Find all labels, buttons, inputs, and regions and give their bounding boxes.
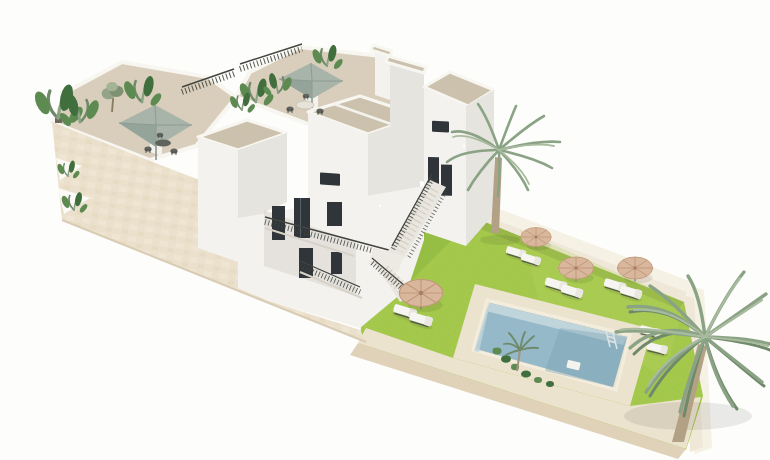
window [272, 206, 285, 240]
wall-light [379, 205, 381, 207]
slot-window [320, 172, 340, 185]
window [327, 202, 342, 226]
render-canvas: 3D architectural rendering of a white Me… [0, 0, 770, 460]
window [294, 198, 310, 238]
back-panel [390, 60, 424, 182]
slot-window [432, 121, 449, 133]
architectural-render: 3D architectural rendering of a white Me… [0, 0, 770, 460]
window [331, 252, 342, 274]
block-a-front-face [198, 137, 238, 262]
right-tower [424, 72, 494, 246]
wall-light [463, 145, 466, 148]
